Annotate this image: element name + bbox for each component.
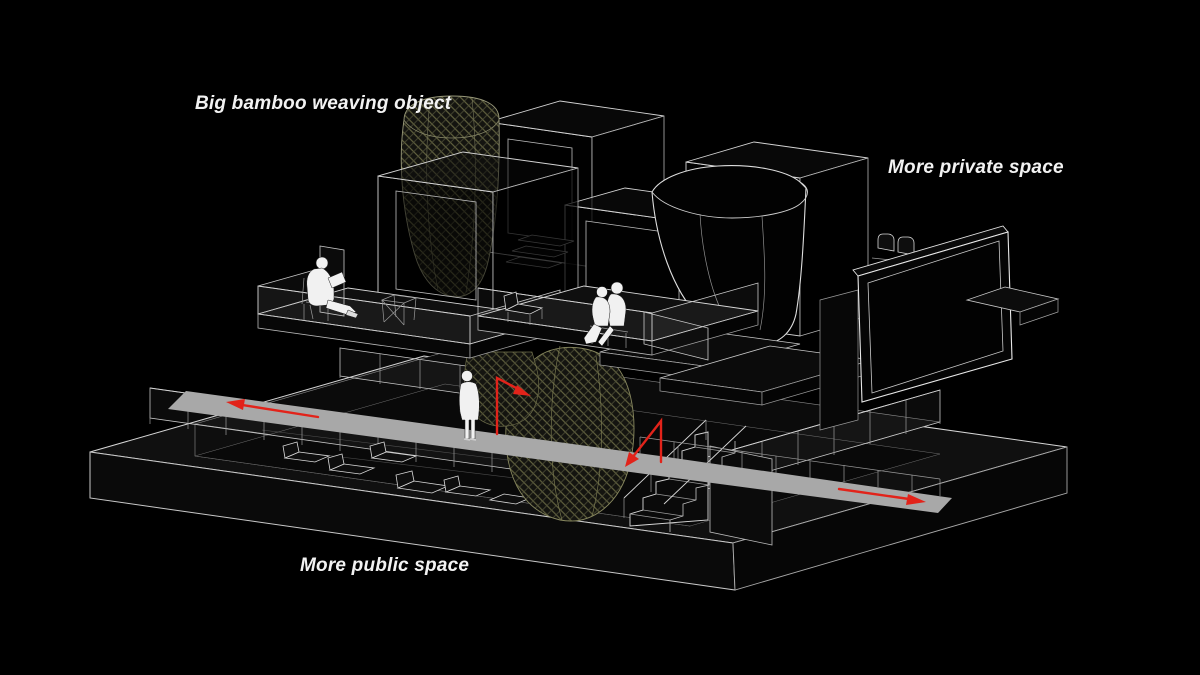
label-bamboo-object: Big bamboo weaving object bbox=[195, 93, 452, 114]
privacy-wall-panel bbox=[853, 226, 1012, 402]
label-public-space: More public space bbox=[300, 555, 469, 576]
axonometric-diagram: Big bamboo weaving object More private s… bbox=[0, 0, 1200, 675]
diagram-canvas: Big bamboo weaving object More private s… bbox=[0, 0, 1200, 675]
label-private-space: More private space bbox=[888, 157, 1064, 178]
